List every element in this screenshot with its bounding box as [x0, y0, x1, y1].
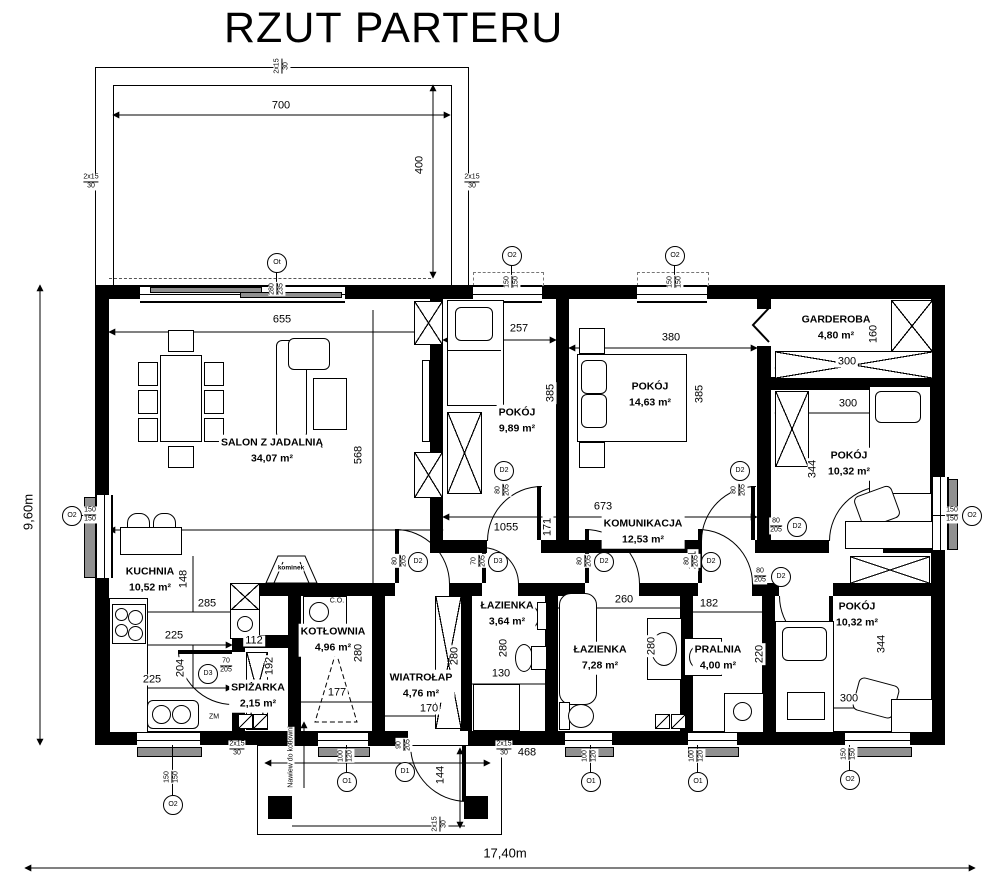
- toilet: [568, 704, 594, 728]
- coffee-table: [313, 378, 347, 430]
- chair: [138, 362, 158, 386]
- terrace-edge-dashed: [109, 278, 431, 279]
- desk: [845, 521, 933, 549]
- door-tag-d1: D1: [395, 762, 415, 782]
- door-leaf: [537, 486, 541, 540]
- dim-terrace-width: 700: [270, 101, 292, 112]
- lintel-label: 2x1530: [228, 740, 245, 757]
- room-label-pokoj-a: POKÓJ9,89 m²: [497, 405, 538, 438]
- dim-pralnia-width: 182: [698, 599, 720, 610]
- door-size-d2: 80205: [494, 483, 511, 497]
- window-tag-o2: O2: [840, 770, 860, 790]
- door-size-d2: 80205: [753, 567, 767, 584]
- pillow: [581, 360, 607, 394]
- door-tag-d2: D2: [730, 461, 750, 481]
- room-label-salon: SALON Z JADALNIĄ34,07 m²: [219, 435, 325, 468]
- dim-garderoba-width: 300: [836, 357, 858, 368]
- kitchen-cabinet: [230, 583, 260, 611]
- window-sill: [137, 747, 202, 757]
- vent-icon: [671, 714, 686, 729]
- tv-unit: [422, 360, 430, 442]
- window-size-o1: 100120: [581, 749, 598, 763]
- wall-segment: [556, 299, 569, 540]
- dim-total-height: 9,60m: [22, 492, 35, 532]
- room-label-lazienka-duza: ŁAZIENKA7,28 m²: [571, 642, 628, 675]
- door-tag-d2: D2: [771, 567, 791, 587]
- dim-pokoj-a-width: 257: [508, 324, 530, 335]
- dim-spizarka-width: 112: [243, 636, 265, 647]
- wardrobe: [447, 412, 482, 494]
- chair: [138, 418, 158, 442]
- lintel-label: 2x1530: [82, 173, 99, 190]
- dim-terrace-depth: 400: [415, 154, 426, 176]
- wall-segment: [833, 583, 931, 596]
- door-size-d2: 80205: [769, 517, 783, 534]
- burner: [128, 610, 143, 625]
- dim-kuchnia-a: 225: [163, 631, 185, 642]
- door-tag-d2: D2: [494, 461, 514, 481]
- washbasin-counter: [531, 646, 547, 670]
- dim-spizarka-depth: 192: [265, 655, 276, 677]
- wall-segment: [707, 285, 945, 299]
- room-label-lazienka-mala: ŁAZIENKA3,64 m²: [478, 598, 535, 631]
- chair: [168, 330, 194, 352]
- dim-lazienka-duza-depth: 280: [647, 635, 658, 657]
- fridge-symbol: [237, 616, 253, 632]
- dim-porch-depth: 144: [436, 764, 447, 786]
- door-size-d3: 70205: [470, 554, 487, 568]
- laundry-sink: [733, 702, 752, 721]
- bar-stool: [153, 513, 176, 528]
- wall-segment: [468, 731, 565, 745]
- wall-segment: [755, 540, 829, 553]
- vent-icon: [253, 714, 268, 729]
- dim-pokoj-b-width: 380: [660, 333, 682, 344]
- window-tag-o2: O2: [665, 246, 685, 266]
- dim-lazienka-mala-width: 130: [490, 669, 512, 680]
- chair: [204, 362, 224, 386]
- dim-total-width: 17,40m: [481, 847, 528, 860]
- dim-lazienka-mala-depth: 280: [499, 637, 510, 659]
- boiler-symbol: [309, 602, 329, 622]
- window-tag-o2: O2: [502, 246, 522, 266]
- window-tag-o1: O1: [688, 772, 708, 792]
- wall-segment: [639, 583, 698, 596]
- door-tag-d3: D3: [488, 552, 508, 572]
- dim-komunikacja-a: 1055: [492, 523, 520, 534]
- dim-pralnia-depth: 220: [755, 643, 766, 665]
- bar-stool: [127, 513, 150, 528]
- wall-segment: [757, 346, 771, 540]
- door-tag-d2: D2: [408, 552, 428, 572]
- wall-segment: [258, 583, 395, 596]
- window-tag-ot: Ot: [267, 253, 287, 273]
- dim-kuchnia-h: 204: [176, 657, 187, 679]
- pillow: [875, 391, 921, 423]
- dim-salon-width: 655: [271, 315, 293, 326]
- window-tag-o2: O2: [962, 506, 982, 526]
- door-tag-d2: D2: [594, 552, 614, 572]
- window-size-o1: 100120: [688, 749, 705, 763]
- wall-segment: [345, 285, 473, 299]
- dim-komunikacja-c: 673: [592, 502, 614, 513]
- sofa-corner: [288, 338, 330, 370]
- lintel-label: 2x1530: [495, 740, 512, 757]
- wall-segment: [95, 731, 137, 745]
- lintel-label: 2x1530: [431, 815, 448, 832]
- sliding-panel: [240, 292, 342, 298]
- vent-icon: [655, 714, 670, 729]
- room-label-pokoj-d: POKÓJ10,32 m²: [834, 599, 880, 632]
- wall-segment: [372, 596, 385, 731]
- room-label-wiatrolap: WIATROŁAP4,76 m²: [388, 670, 455, 703]
- room-label-pralnia: PRALNIA4,00 m²: [693, 642, 744, 675]
- room-label-pokoj-c: POKÓJ10,32 m²: [826, 448, 872, 481]
- toilet-tank: [537, 602, 547, 630]
- dining-table: [160, 355, 202, 442]
- bed-cushion: [787, 692, 825, 720]
- dim-pokoj-c-depth: 344: [808, 458, 819, 480]
- dim-kuchnia-w: 285: [196, 599, 218, 610]
- dim-kuchnia-d: 148: [179, 568, 190, 590]
- shower: [473, 684, 520, 731]
- pillow: [782, 627, 827, 661]
- room-label-kuchnia: KUCHNIA10,52 m²: [124, 564, 176, 597]
- door-leaf: [751, 486, 755, 540]
- zm-label: ZM: [209, 714, 219, 721]
- wall-segment: [288, 596, 301, 731]
- door-size-d2: 80205: [730, 483, 747, 497]
- room-label-pokoj-b: POKÓJ14,63 m²: [627, 379, 673, 412]
- dim-pokoj-d-depth: 344: [877, 633, 888, 655]
- window-o2: [95, 495, 113, 578]
- sink-bowl: [172, 705, 191, 724]
- dim-wiatrolap-width: 170: [418, 704, 440, 715]
- wall-segment: [910, 731, 945, 745]
- door-leaf: [462, 745, 466, 801]
- nightstand: [579, 328, 605, 354]
- window-tag-o1: O1: [581, 772, 601, 792]
- leader-line: [931, 515, 945, 516]
- wall-segment: [931, 285, 945, 477]
- tv-cabinet: [414, 301, 443, 345]
- wall-segment: [200, 731, 318, 745]
- wall-segment: [737, 731, 845, 745]
- wall-segment: [95, 578, 109, 745]
- chair: [204, 390, 224, 414]
- dim-pokoj-a-depth: 385: [546, 382, 557, 404]
- window-size-o2: 150150: [83, 506, 97, 523]
- wall-segment: [95, 285, 109, 495]
- bed-line: [448, 350, 501, 351]
- burner: [115, 608, 128, 621]
- door-tag-d3: D3: [198, 664, 218, 684]
- tv-cabinet: [414, 452, 443, 498]
- window-tag-o2: O2: [62, 506, 82, 526]
- door-size-d2: 80205: [683, 554, 700, 568]
- door-size-d1: 90205: [395, 738, 412, 752]
- wardrobe: [891, 300, 933, 352]
- burner: [128, 626, 143, 641]
- wall-segment: [757, 299, 771, 309]
- chair: [138, 390, 158, 414]
- dim-salon-depth: 568: [354, 444, 365, 466]
- floor-plan-sheet: RZUT PARTERU: [0, 0, 1000, 889]
- burner: [115, 624, 128, 637]
- chair: [168, 446, 194, 468]
- wardrobe: [775, 391, 809, 467]
- door-size-d2: 80205: [576, 554, 593, 568]
- kitchen-island: [120, 527, 182, 555]
- window-tag-o2: O2: [163, 795, 183, 815]
- door-leaf: [178, 650, 232, 654]
- wall-segment: [542, 285, 637, 299]
- dim-pokoj-d-width: 300: [838, 694, 860, 705]
- dim-porch-width: 468: [516, 748, 538, 759]
- fireplace-label: kominek: [278, 565, 304, 572]
- dim-garderoba-depth: 160: [869, 323, 880, 345]
- dim-pokoj-b-depth: 385: [695, 383, 706, 405]
- door-size-d2: 80205: [391, 554, 408, 568]
- dim-kotlownia-depth: 280: [354, 642, 365, 664]
- sink-bowl: [152, 705, 171, 724]
- nightstand: [579, 442, 605, 468]
- dim-kotlownia-width: 177: [326, 688, 348, 699]
- window-size-o1: 100120: [337, 749, 354, 763]
- pillow: [455, 307, 493, 341]
- window-size-o2: 150150: [840, 747, 857, 761]
- room-label-komunikacja: KOMUNIKACJA12,53 m²: [602, 516, 685, 549]
- vent-icon: [238, 714, 253, 729]
- hall-wardrobe: [850, 556, 930, 584]
- room-label-garderoba: GARDEROBA4,80 m²: [800, 312, 873, 345]
- window-tag-o1: O1: [337, 772, 357, 792]
- lintel-label: 2x1530: [463, 173, 480, 190]
- dim-wiatrolap-depth: 280: [450, 645, 461, 667]
- vent-note: Nawiew do kotłowni: [288, 726, 295, 787]
- window-size-ot: 280235: [268, 282, 285, 296]
- lintel-label: 2x1530: [273, 57, 290, 74]
- boiler-label: C.O.: [330, 598, 344, 605]
- dim-pokoj-c-width: 300: [837, 399, 859, 410]
- wall-segment: [232, 648, 245, 652]
- window-size-o2: 150150: [666, 275, 683, 289]
- pillow: [581, 394, 607, 428]
- dim-lazienka-duza-width: 260: [613, 595, 635, 606]
- window-size-o2: 150150: [503, 275, 520, 289]
- dim-kuchnia-b: 225: [141, 675, 163, 686]
- wall-segment: [931, 550, 945, 745]
- dim-komunikacja-b: 171: [543, 516, 554, 538]
- wall-segment: [449, 583, 482, 596]
- door-tag-d2: D2: [701, 552, 721, 572]
- desk: [891, 699, 933, 733]
- wall-segment: [612, 731, 688, 745]
- window-size-o2: 150150: [163, 770, 180, 784]
- window-size-o2: 150150: [945, 506, 959, 523]
- door-size-d3: 70205: [219, 657, 233, 674]
- room-label-spizarka: SPIŻARKA2,15 m²: [229, 680, 287, 713]
- door-tag-d2: D2: [787, 517, 807, 537]
